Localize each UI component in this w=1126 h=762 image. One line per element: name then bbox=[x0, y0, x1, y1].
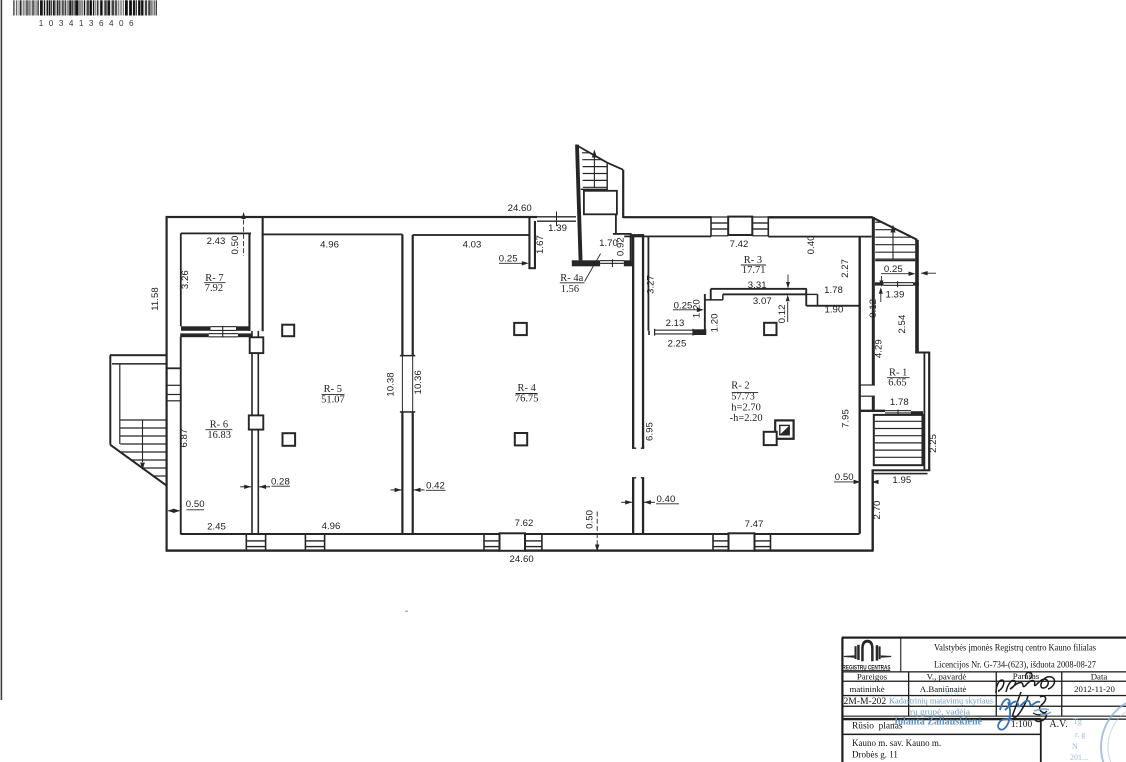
svg-text:2.54: 2.54 bbox=[897, 314, 908, 333]
svg-text:R- 6: R- 6 bbox=[210, 420, 228, 431]
svg-text:0.42: 0.42 bbox=[426, 481, 445, 492]
svg-text:0.40: 0.40 bbox=[656, 494, 675, 505]
svg-text:Drobės g. 11: Drobės g. 11 bbox=[852, 750, 898, 760]
svg-text:3.31: 3.31 bbox=[748, 280, 767, 291]
svg-text:1.78: 1.78 bbox=[824, 285, 843, 296]
svg-text:24.60: 24.60 bbox=[508, 203, 532, 214]
svg-text:3.27: 3.27 bbox=[646, 275, 657, 294]
svg-text:Licencijos Nr. G-734-(623), iš: Licencijos Nr. G-734-(623), išduota 2008… bbox=[934, 659, 1096, 669]
svg-text:57.73: 57.73 bbox=[731, 392, 755, 403]
svg-text:1:100: 1:100 bbox=[1011, 720, 1033, 730]
svg-text:1.67: 1.67 bbox=[535, 235, 546, 254]
svg-text:0.12: 0.12 bbox=[868, 299, 879, 318]
svg-text:Kauno m. sav. Kauno m.: Kauno m. sav. Kauno m. bbox=[852, 738, 941, 748]
svg-text:3.07: 3.07 bbox=[753, 296, 772, 307]
svg-text:0.28: 0.28 bbox=[271, 477, 290, 488]
svg-text:matininkė: matininkė bbox=[850, 684, 885, 694]
svg-text:r. g: r. g bbox=[1075, 730, 1085, 739]
svg-text:Data: Data bbox=[1091, 672, 1108, 682]
svg-text:Parašas: Parašas bbox=[1013, 671, 1040, 681]
svg-text:1.95: 1.95 bbox=[892, 475, 911, 486]
svg-text:0.50: 0.50 bbox=[230, 236, 241, 255]
svg-text:2.13: 2.13 bbox=[666, 318, 685, 329]
svg-text:10.38: 10.38 bbox=[386, 372, 397, 396]
svg-text:24.60: 24.60 bbox=[509, 554, 533, 565]
svg-text:16.83: 16.83 bbox=[207, 430, 231, 441]
svg-text:2.27: 2.27 bbox=[840, 259, 851, 278]
svg-text:VĮ R: VĮ R bbox=[945, 689, 959, 697]
svg-text:Jolanta Zaliauskienė: Jolanta Zaliauskienė bbox=[893, 716, 982, 728]
svg-text:R- 4: R- 4 bbox=[518, 383, 537, 394]
svg-text:0.40: 0.40 bbox=[806, 235, 817, 254]
svg-text:1.20: 1.20 bbox=[710, 313, 721, 332]
svg-text:3.26: 3.26 bbox=[180, 270, 191, 289]
svg-text:h=2.70: h=2.70 bbox=[731, 403, 761, 414]
svg-text:A.Baniūnaitė: A.Baniūnaitė bbox=[920, 684, 967, 694]
svg-text:7.47: 7.47 bbox=[745, 519, 764, 530]
svg-text:2012-11-20: 2012-11-20 bbox=[1074, 684, 1115, 694]
svg-text:2.70: 2.70 bbox=[872, 501, 883, 520]
svg-text:7.92: 7.92 bbox=[205, 283, 223, 294]
svg-text:0.92: 0.92 bbox=[615, 237, 626, 256]
svg-text:51.07: 51.07 bbox=[321, 394, 345, 405]
svg-text:10.36: 10.36 bbox=[413, 370, 424, 394]
svg-text:R- 5: R- 5 bbox=[324, 384, 342, 395]
svg-text:1.39: 1.39 bbox=[548, 223, 567, 234]
svg-text:0.50: 0.50 bbox=[186, 499, 205, 510]
svg-text:R- 4a: R- 4a bbox=[560, 273, 583, 284]
svg-text:7.62: 7.62 bbox=[515, 518, 534, 529]
svg-text:6.95: 6.95 bbox=[645, 422, 656, 441]
svg-text:4.96: 4.96 bbox=[320, 240, 339, 251]
svg-text:0.50: 0.50 bbox=[584, 510, 595, 529]
svg-text:4.03: 4.03 bbox=[463, 239, 482, 250]
svg-text:76.75: 76.75 bbox=[515, 394, 539, 405]
svg-text:Tg: Tg bbox=[1073, 717, 1082, 726]
svg-text:Pareigos: Pareigos bbox=[857, 672, 888, 682]
svg-text:11.58: 11.58 bbox=[150, 287, 161, 311]
svg-text:6.87: 6.87 bbox=[179, 429, 190, 448]
svg-text:Kadastrinių matavimų skyriaus: Kadastrinių matavimų skyriaus bbox=[889, 697, 993, 706]
svg-text:0.50: 0.50 bbox=[835, 472, 854, 483]
svg-text:2.45: 2.45 bbox=[207, 522, 226, 533]
svg-text:1 0 3 4 1 3 6 4 0 6: 1 0 3 4 1 3 6 4 0 6 bbox=[39, 19, 135, 28]
svg-text:R- 2: R- 2 bbox=[731, 381, 749, 392]
svg-text:0.12: 0.12 bbox=[777, 304, 788, 323]
svg-text:1.56: 1.56 bbox=[561, 284, 579, 295]
svg-text:V., pavardė: V., pavardė bbox=[927, 672, 967, 682]
svg-text:1.78: 1.78 bbox=[890, 397, 909, 408]
svg-text:4.29: 4.29 bbox=[874, 339, 885, 358]
svg-text:-h=2.20: -h=2.20 bbox=[730, 413, 763, 424]
svg-text:7.42: 7.42 bbox=[730, 239, 749, 250]
svg-text:2M-M-202: 2M-M-202 bbox=[844, 696, 887, 707]
svg-text:201...: 201... bbox=[1070, 753, 1088, 762]
svg-text:1.39: 1.39 bbox=[885, 290, 904, 301]
svg-text:0.25: 0.25 bbox=[499, 254, 518, 265]
svg-text:7.95: 7.95 bbox=[841, 409, 852, 428]
svg-text:6.65: 6.65 bbox=[888, 377, 906, 388]
svg-text:1.90: 1.90 bbox=[824, 305, 843, 316]
svg-text:17.71: 17.71 bbox=[742, 265, 766, 276]
svg-text:2.43: 2.43 bbox=[207, 236, 226, 247]
svg-text:0.25: 0.25 bbox=[674, 301, 693, 312]
svg-text:2.25: 2.25 bbox=[928, 434, 939, 453]
svg-text:N: N bbox=[1072, 742, 1078, 751]
svg-text:4.96: 4.96 bbox=[322, 521, 341, 532]
svg-text:Rūsio planas: Rūsio planas bbox=[852, 722, 903, 732]
svg-text:0.25: 0.25 bbox=[884, 264, 903, 275]
svg-text:1.20: 1.20 bbox=[691, 299, 702, 318]
svg-text:Valstybės įmonės Registrų cent: Valstybės įmonės Registrų centro Kauno f… bbox=[934, 643, 1096, 653]
svg-text:2.25: 2.25 bbox=[667, 338, 686, 349]
svg-text:A.V.: A.V. bbox=[1049, 719, 1067, 730]
